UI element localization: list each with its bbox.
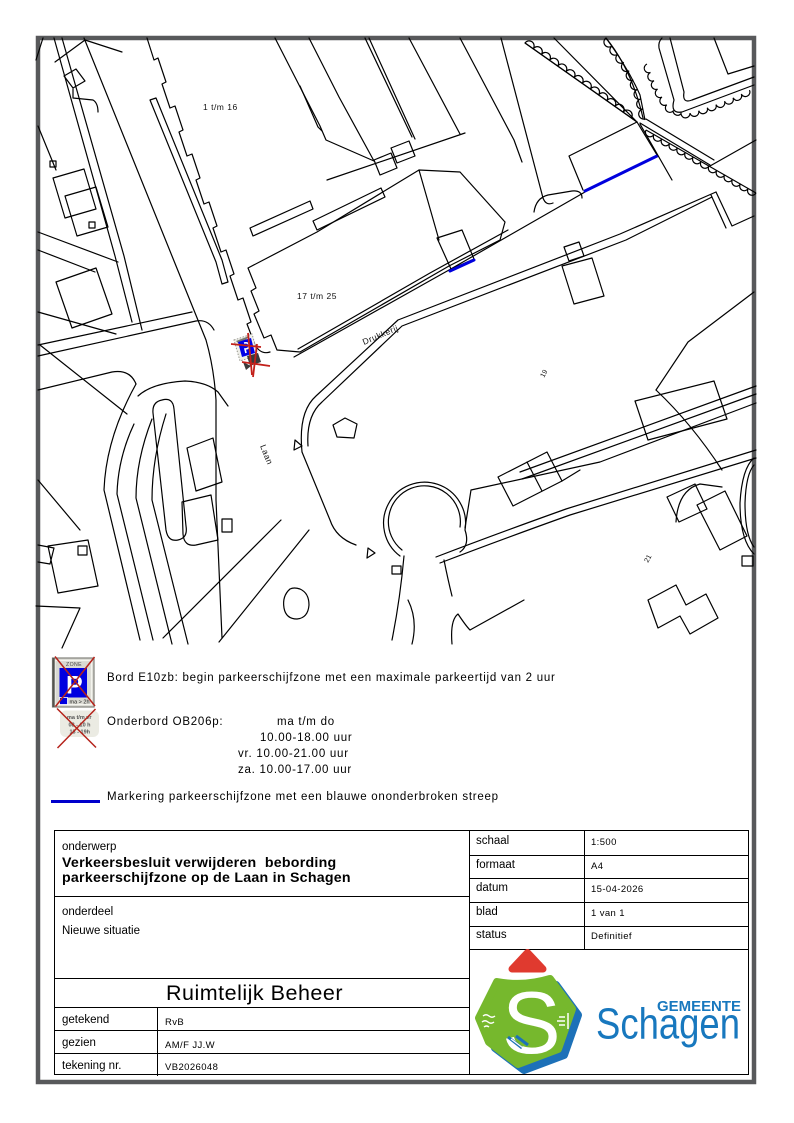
svg-text:S: S xyxy=(502,973,561,1072)
svg-text:ma > 2h: ma > 2h xyxy=(70,700,90,706)
svg-text:Schagen: Schagen xyxy=(596,1001,740,1049)
svg-text:ZONE: ZONE xyxy=(66,662,82,668)
